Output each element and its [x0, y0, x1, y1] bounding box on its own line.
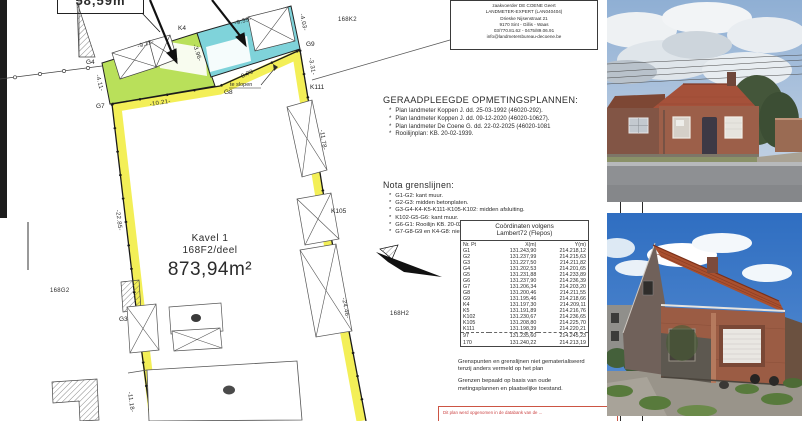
point-label: G7	[96, 103, 105, 110]
tire	[750, 374, 760, 384]
chimney	[727, 72, 736, 86]
consulted-plans-section: GERAADPLEEGDE OPMETINGSPLANNEN: Plan lan…	[383, 95, 607, 139]
red-notice-text: Dit plan werd opgenomen in de databank v…	[443, 410, 542, 415]
point-label: G4	[86, 59, 95, 66]
tire	[769, 376, 779, 386]
flower-pot	[719, 381, 729, 389]
measurement-label: -4.11-	[94, 74, 104, 92]
neighbor-parcel-label: 168K2	[338, 17, 357, 23]
plan-line-in-gap	[620, 416, 621, 421]
front-door	[702, 117, 717, 156]
surveyor-email: info@landmetersbureau-decoene.be	[451, 34, 597, 40]
street	[607, 152, 802, 202]
point-label: G3	[119, 316, 128, 323]
photo-house-street-illustration	[607, 0, 802, 202]
measurement-label: -22.85-	[114, 210, 123, 232]
list-item: G3-G4-K4-K5-K111-K105-K102: midden afslu…	[389, 207, 607, 214]
plan-line-in-gap	[642, 416, 643, 421]
building-area-value: 58,59m	[58, 0, 143, 8]
neighbor-parcel-label: 168H2	[390, 311, 409, 317]
list-item: Plan landmeter De Coene G. dd. 22-02-202…	[389, 124, 607, 132]
note-basis: Grenzen bepaald op basis van oude meting…	[458, 378, 591, 392]
plan-line-in-gap	[642, 202, 643, 213]
surveyor-info-box: zaakvoerder DE COENE Geert LANDMETER-EXP…	[450, 0, 598, 50]
coordinates-table-box: Coördinaten volgens Lambert72 (Flepos) N…	[460, 220, 589, 347]
point-label: K4	[178, 25, 186, 32]
list-item: Plan landmeter Koppen J. dd. 25-03-1992 …	[389, 108, 607, 116]
parcel-lot-number: 168F2/deel	[130, 245, 290, 257]
point-label: K105	[331, 208, 347, 215]
col-header-point: Nr. Pt	[461, 241, 489, 248]
list-item: G1-G2: kant muur.	[389, 193, 607, 200]
chimney	[707, 257, 718, 273]
measurement-label: -11.18-	[126, 391, 135, 412]
surveyor-leader-line	[312, 40, 450, 80]
photo-house-rear-view	[607, 213, 802, 416]
note-materialisation: Grenspunten en grenslijnen niet gemateri…	[458, 359, 591, 373]
measurement-label: -3.31-	[307, 57, 316, 75]
list-item: Rooilijnplan: KB. 20-02-1939.	[389, 131, 607, 139]
table-header-row: Nr. Pt X(m) Y(m)	[461, 241, 588, 248]
point-label: K111	[310, 84, 325, 91]
parcel-name: Kavel 1	[130, 233, 290, 245]
table-row: 170131.240,22214.213,19	[461, 340, 588, 346]
table-cell: 214.213,19	[538, 340, 588, 346]
col-header-y: Y(m)	[538, 241, 588, 248]
red-notice-box: Dit plan werd opgenomen in de databank v…	[438, 406, 618, 421]
garden-wall	[775, 118, 802, 152]
consulted-plans-list: Plan landmeter Koppen J. dd. 25-03-1992 …	[389, 108, 607, 139]
page-edge-bar	[0, 0, 28, 270]
table-cell: 131.240,22	[489, 340, 539, 346]
boundary-notes-title: Nota grenslijnen:	[383, 180, 607, 190]
measurement-label: -4.03-	[298, 13, 308, 31]
coordinates-table-title: Coördinaten volgens Lambert72 (Flepos)	[461, 221, 588, 241]
north-arrow-icon	[376, 245, 442, 277]
list-item: G2-G3: midden betonplaten.	[389, 200, 607, 207]
plan-notes: Grenspunten en grenslijnen niet gemateri…	[458, 359, 591, 393]
table-cell: 170	[461, 340, 489, 346]
col-header-x: X(m)	[489, 241, 539, 248]
neighbor-parcel-label: 168G2	[50, 288, 70, 294]
coordinates-table: Nr. Pt X(m) Y(m) G1131.243,90214.218,12G…	[461, 241, 588, 346]
point-label: G8	[224, 89, 233, 96]
te-slopen-label: te slopen	[230, 82, 252, 88]
parcel-area: 873,94m²	[130, 259, 290, 281]
photo-house-rear-illustration	[607, 213, 802, 416]
window-shuttered	[725, 117, 742, 138]
list-item: Plan landmeter Koppen J. dd. 09-12-2020 …	[389, 116, 607, 124]
point-label: G9	[306, 41, 315, 48]
plan-line-in-gap	[620, 202, 621, 213]
building-area-box: 58,59m	[57, 0, 144, 14]
survey-plan-page: G4 G7 G8 G9 K4 K111 K105 G3 -9.11- -9.39…	[0, 0, 802, 421]
parcel-label-block: Kavel 1 168F2/deel 873,94m²	[130, 233, 290, 281]
consulted-plans-title: GERAADPLEEGDE OPMETINGSPLANNEN:	[383, 95, 607, 105]
photo-house-street-view	[607, 0, 802, 202]
